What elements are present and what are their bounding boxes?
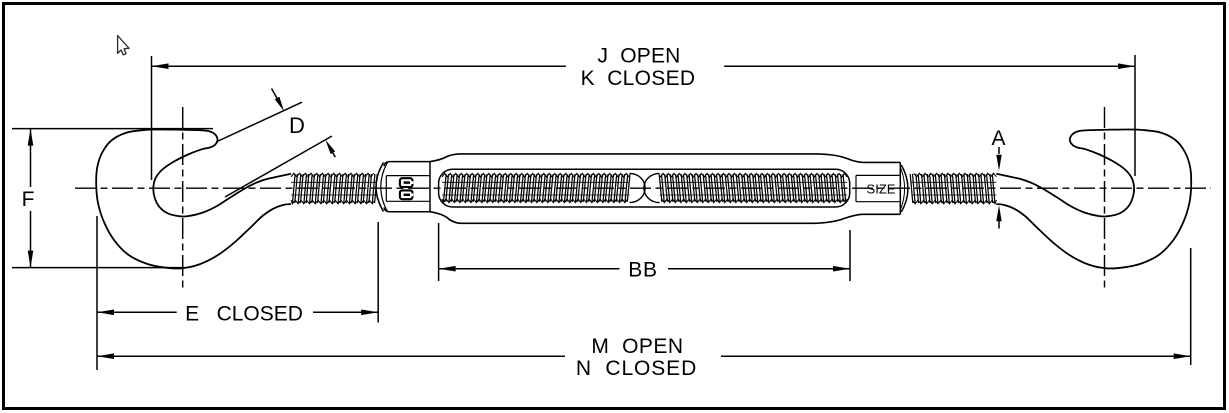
svg-text:M OPEN: M OPEN <box>591 335 683 358</box>
svg-text:J OPEN: J OPEN <box>597 45 680 68</box>
svg-text:D: D <box>289 113 305 138</box>
svg-text:N CLOSED: N CLOSED <box>576 357 697 380</box>
svg-text:SIZE: SIZE <box>867 181 896 196</box>
svg-text:K CLOSED: K CLOSED <box>581 67 696 90</box>
svg-text:F: F <box>22 188 35 211</box>
svg-text:BB: BB <box>628 258 658 281</box>
svg-text:E CLOSED: E CLOSED <box>185 303 303 326</box>
svg-text:A: A <box>991 127 1005 150</box>
